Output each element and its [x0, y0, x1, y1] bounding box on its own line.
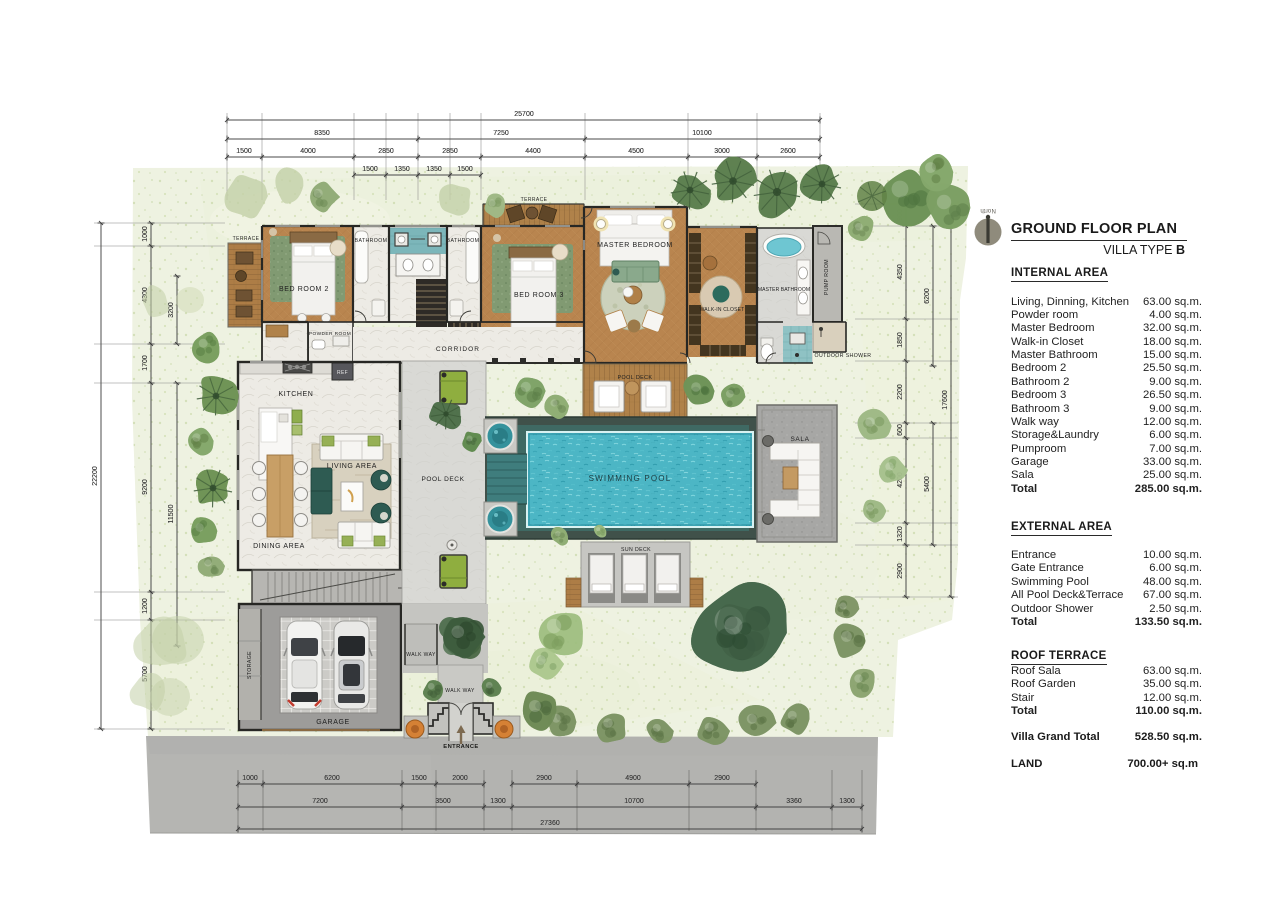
svg-text:1000: 1000 [242, 775, 258, 782]
svg-text:SWIMMING POOL: SWIMMING POOL [589, 474, 672, 483]
svg-text:4500: 4500 [628, 148, 644, 155]
svg-text:1300: 1300 [839, 798, 855, 805]
svg-text:WALK WAY: WALK WAY [406, 652, 436, 658]
svg-text:BED ROOM 3: BED ROOM 3 [514, 292, 564, 299]
svg-text:2900: 2900 [714, 775, 730, 782]
svg-text:3200: 3200 [168, 302, 175, 318]
svg-text:1500: 1500 [362, 166, 378, 173]
svg-text:2200: 2200 [897, 384, 904, 400]
svg-text:1500: 1500 [236, 148, 252, 155]
svg-text:REF: REF [337, 370, 348, 376]
svg-text:27360: 27360 [540, 820, 560, 827]
svg-text:7250: 7250 [493, 130, 509, 137]
svg-text:4000: 4000 [300, 148, 316, 155]
svg-text:MASTER BATHROOM: MASTER BATHROOM [758, 287, 810, 293]
svg-text:STORAGE: STORAGE [247, 651, 253, 679]
svg-text:3360: 3360 [786, 798, 802, 805]
svg-text:BED ROOM 2: BED ROOM 2 [279, 286, 329, 293]
svg-text:600: 600 [897, 424, 904, 436]
svg-text:8350: 8350 [314, 130, 330, 137]
svg-text:WALK-IN CLOSET: WALK-IN CLOSET [700, 307, 745, 313]
svg-text:17600: 17600 [942, 390, 949, 410]
svg-text:CORRIDOR: CORRIDOR [436, 346, 480, 353]
svg-text:1000: 1000 [142, 226, 149, 242]
svg-text:SALA: SALA [790, 436, 809, 443]
svg-text:2900: 2900 [536, 775, 552, 782]
svg-text:2600: 2600 [780, 148, 796, 155]
svg-text:6200: 6200 [324, 775, 340, 782]
svg-text:TERRACE: TERRACE [233, 236, 260, 242]
svg-text:3500: 3500 [435, 798, 451, 805]
svg-text:4350: 4350 [897, 264, 904, 280]
svg-text:9200: 9200 [142, 479, 149, 495]
svg-text:3000: 3000 [714, 148, 730, 155]
svg-text:1500: 1500 [457, 166, 473, 173]
svg-text:1500: 1500 [411, 775, 427, 782]
svg-text:MASTER BEDROOM: MASTER BEDROOM [597, 242, 673, 249]
svg-text:11500: 11500 [168, 504, 175, 523]
svg-text:5400: 5400 [924, 476, 931, 492]
svg-text:PUMP ROOM: PUMP ROOM [824, 259, 830, 295]
svg-text:BATHROOM: BATHROOM [355, 238, 388, 244]
svg-text:BATHROOM: BATHROOM [447, 238, 480, 244]
svg-text:1350: 1350 [394, 166, 410, 173]
svg-text:POWDER ROOM: POWDER ROOM [309, 331, 351, 337]
svg-text:1700: 1700 [142, 355, 149, 371]
svg-text:POOL DECK: POOL DECK [618, 375, 653, 381]
svg-text:1850: 1850 [897, 332, 904, 348]
svg-text:1200: 1200 [142, 598, 149, 614]
svg-text:1320: 1320 [897, 526, 904, 542]
svg-text:North: North [980, 207, 996, 213]
svg-text:25700: 25700 [514, 111, 534, 118]
svg-text:2850: 2850 [442, 148, 458, 155]
svg-text:4400: 4400 [525, 148, 541, 155]
svg-text:ENTRANCE: ENTRANCE [443, 744, 478, 750]
svg-text:GARAGE: GARAGE [316, 719, 350, 726]
svg-text:SUN DECK: SUN DECK [621, 547, 651, 553]
svg-text:22200: 22200 [92, 466, 99, 486]
svg-text:TERRACE: TERRACE [521, 197, 548, 203]
svg-text:LIVING AREA: LIVING AREA [327, 463, 377, 470]
svg-text:1350: 1350 [426, 166, 442, 173]
svg-text:1300: 1300 [490, 798, 506, 805]
svg-text:10100: 10100 [692, 130, 712, 137]
svg-text:KITCHEN: KITCHEN [279, 391, 314, 398]
svg-text:2900: 2900 [897, 563, 904, 579]
svg-text:2850: 2850 [378, 148, 394, 155]
svg-text:2000: 2000 [452, 775, 468, 782]
svg-text:10700: 10700 [624, 798, 644, 805]
svg-text:OUTDOOR SHOWER: OUTDOOR SHOWER [815, 353, 872, 359]
svg-text:7200: 7200 [312, 798, 328, 805]
svg-text:6200: 6200 [924, 288, 931, 304]
svg-text:WALK WAY: WALK WAY [445, 688, 475, 694]
svg-text:4900: 4900 [625, 775, 641, 782]
svg-text:DINING AREA: DINING AREA [253, 543, 305, 550]
svg-text:POOL DECK: POOL DECK [421, 476, 464, 483]
